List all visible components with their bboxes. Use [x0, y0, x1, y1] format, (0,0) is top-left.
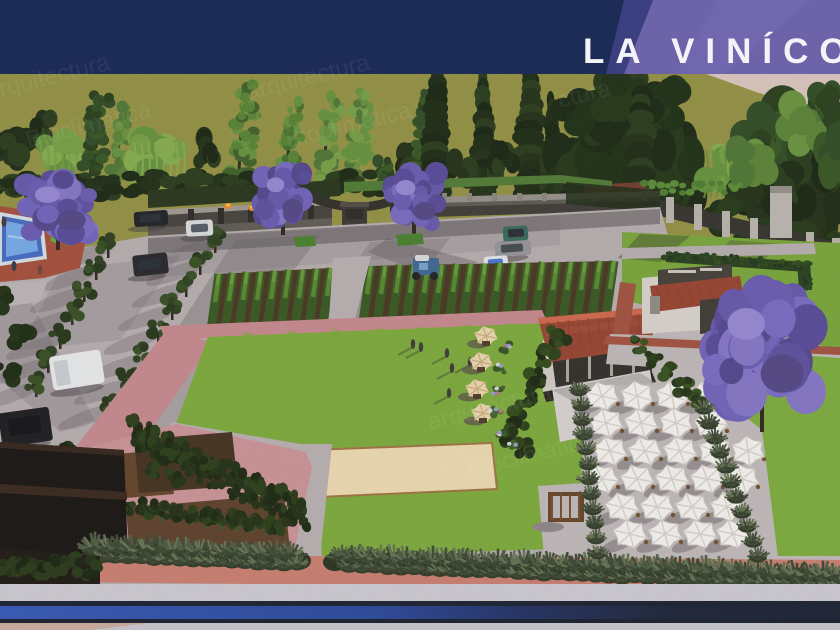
- svg-text:LA VINÍCOL: LA VINÍCOL: [583, 31, 840, 71]
